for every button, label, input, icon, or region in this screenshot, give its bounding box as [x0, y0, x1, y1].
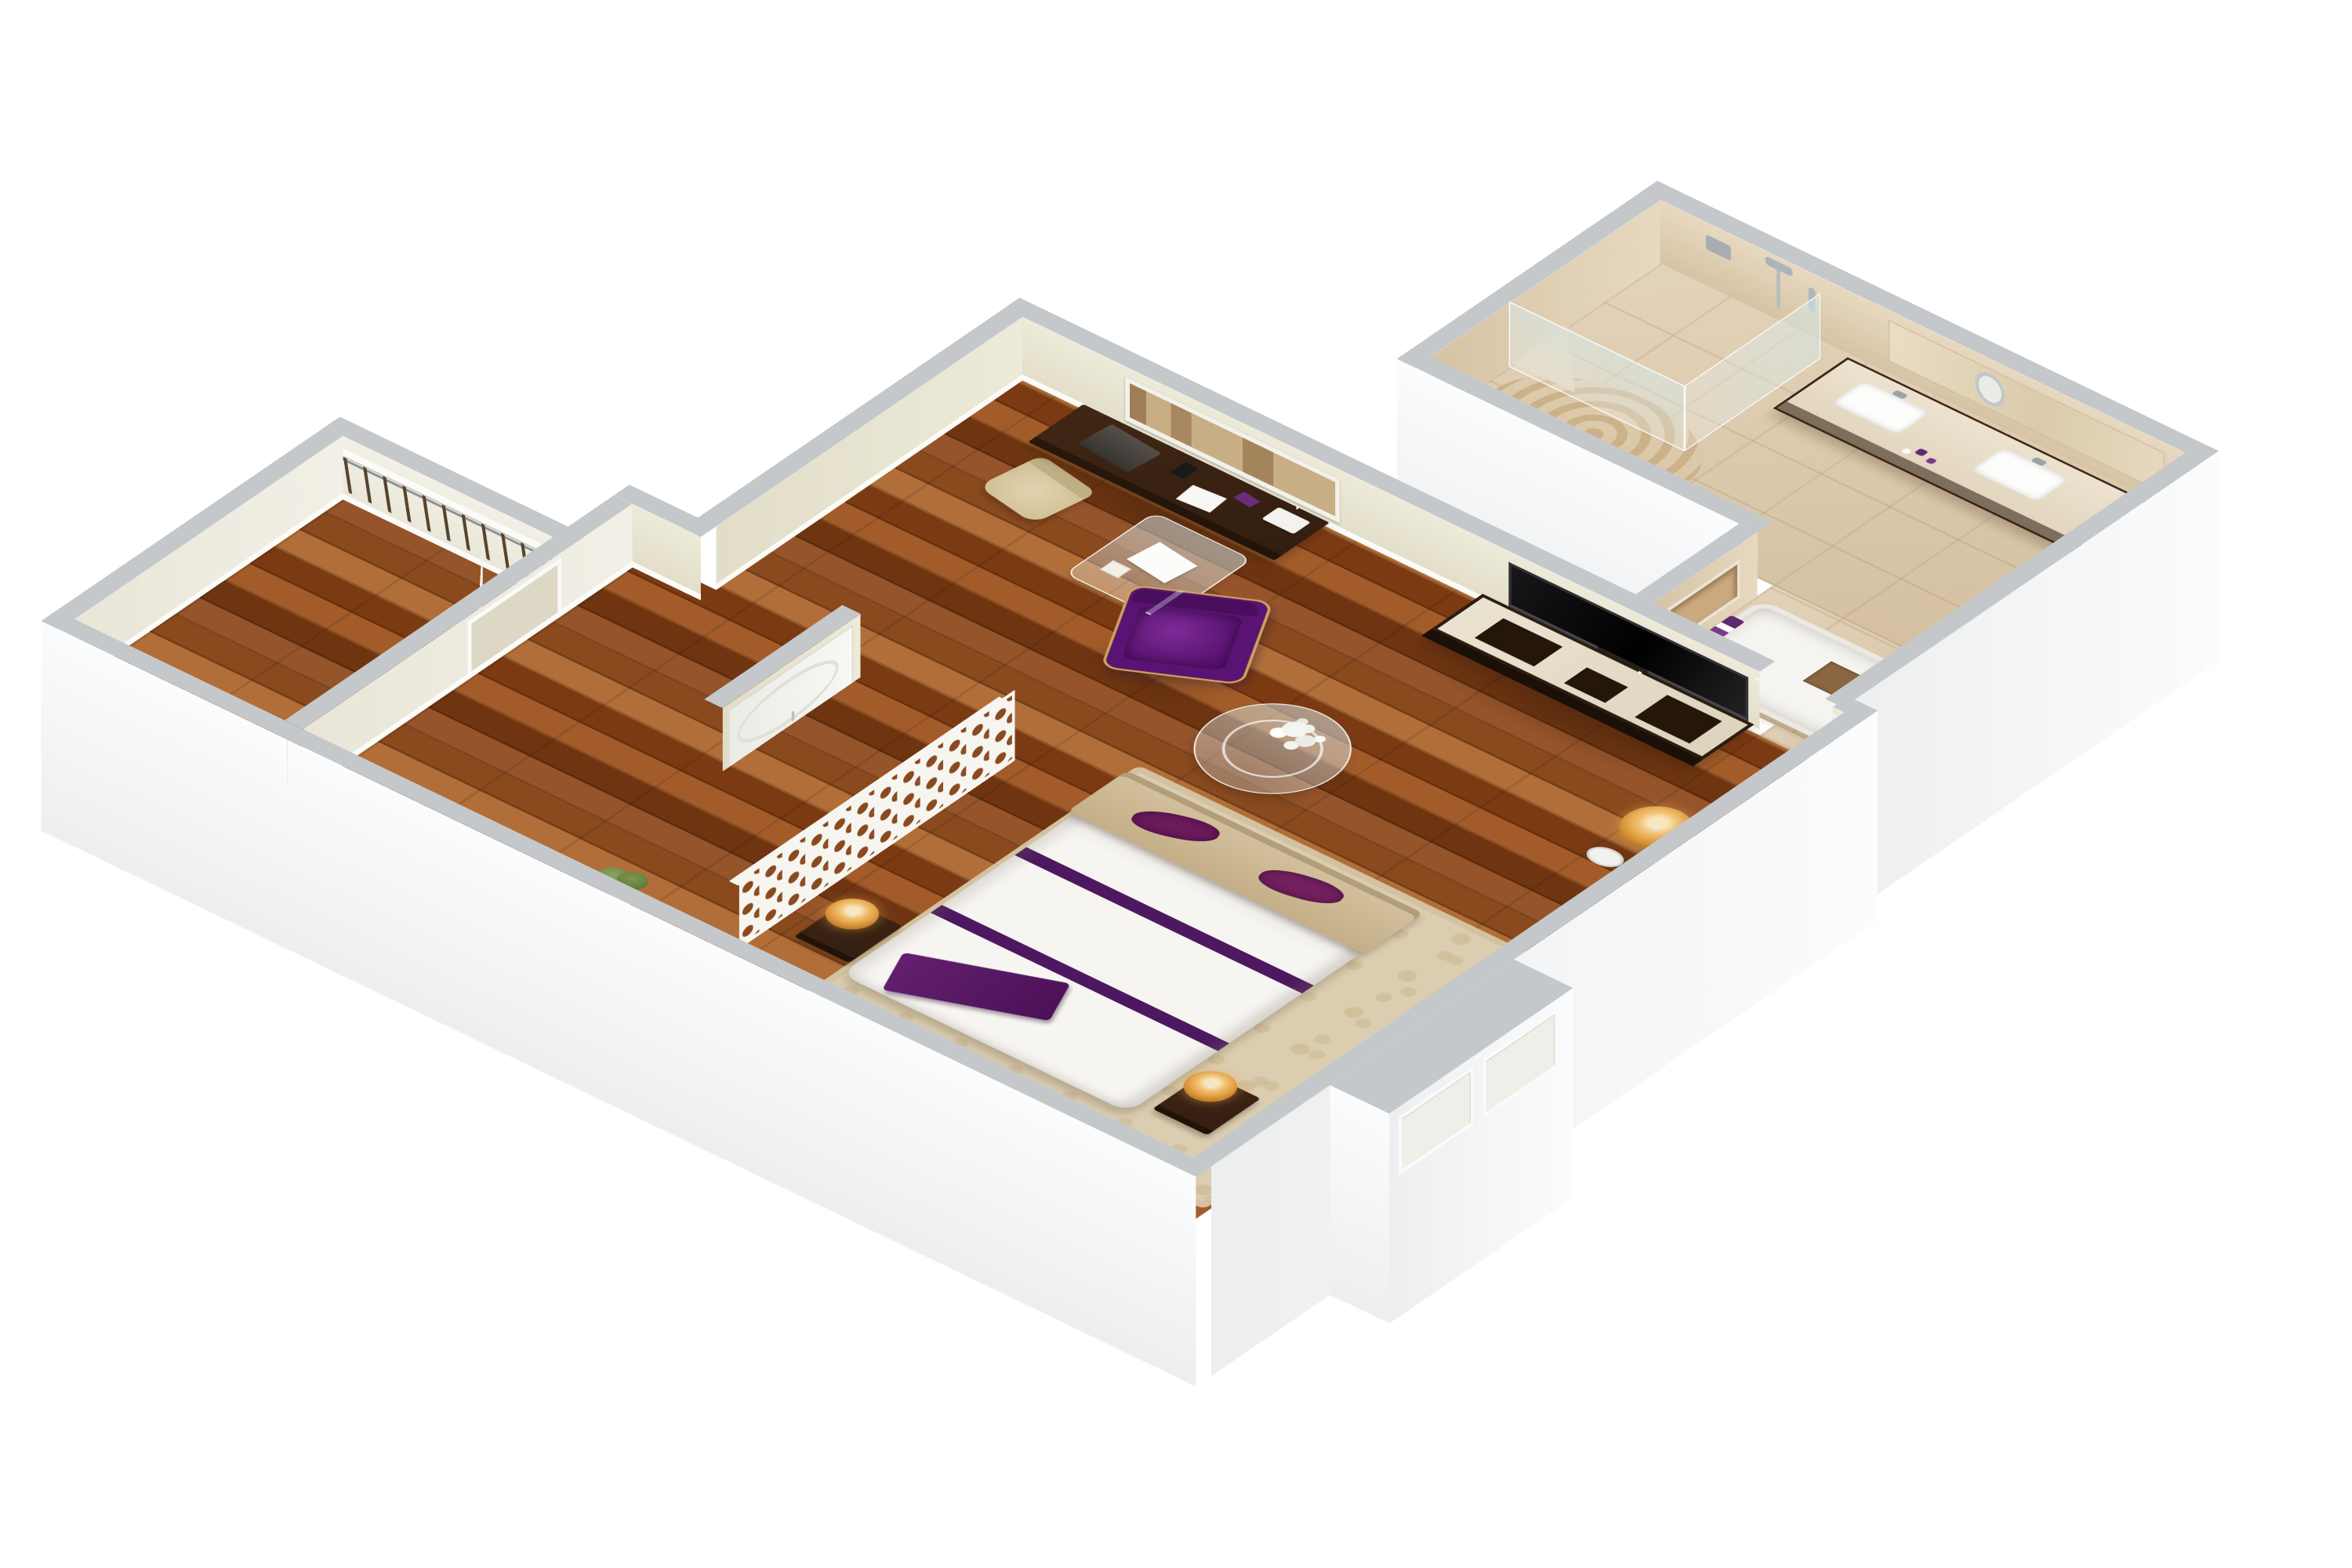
console-inset-3 — [1635, 695, 1722, 743]
shower-valve-icon — [1706, 234, 1731, 261]
coffee-table-inner-ring — [1201, 708, 1344, 789]
desk-phone — [1170, 462, 1199, 479]
toiletry-purple-1 — [1914, 448, 1929, 457]
entry-niche-side — [1330, 1085, 1389, 1323]
table-paper — [1127, 542, 1198, 583]
purple-folder — [1233, 492, 1260, 507]
door-handle-icon — [792, 710, 795, 722]
armchair-cushion — [1122, 604, 1243, 670]
table-box — [1100, 561, 1131, 579]
toiletry-purple-2 — [1925, 457, 1937, 464]
console-inset-1 — [1475, 619, 1563, 666]
desk-papers — [1176, 485, 1227, 512]
toiletry-white — [1900, 448, 1913, 455]
purple-pillow-2 — [1251, 865, 1351, 909]
purple-pillow-1 — [1126, 806, 1226, 847]
floor-plan-stage: 3D isometric floor plan — hotel guest su… — [0, 0, 2352, 1568]
purple-armchair — [1100, 584, 1274, 685]
tissue-box — [1261, 507, 1311, 535]
console-inset-2 — [1564, 667, 1628, 702]
